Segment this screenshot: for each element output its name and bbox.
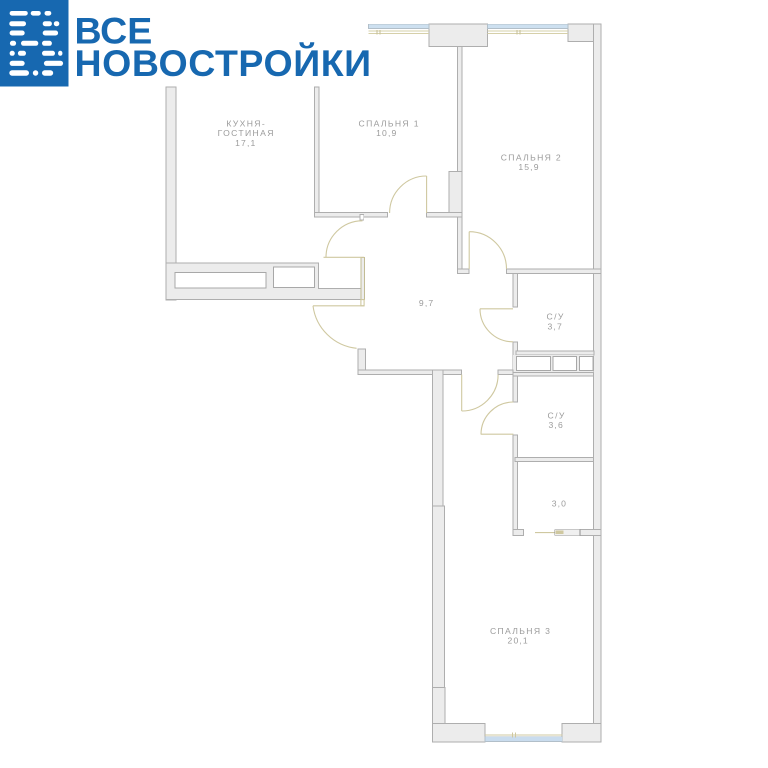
- svg-text:С/У: С/У: [547, 311, 565, 321]
- svg-text:3,7: 3,7: [547, 321, 562, 331]
- svg-text:СПАЛЬНЯ 3: СПАЛЬНЯ 3: [490, 626, 551, 636]
- svg-text:С/У: С/У: [548, 410, 566, 420]
- svg-text:СПАЛЬНЯ 1: СПАЛЬНЯ 1: [359, 119, 420, 129]
- svg-text:20,1: 20,1: [508, 635, 529, 645]
- svg-text:3,6: 3,6: [548, 420, 563, 430]
- svg-text:НОВОСТРОЙКИ: НОВОСТРОЙКИ: [75, 42, 372, 84]
- svg-text:КУХНЯ-: КУХНЯ-: [226, 119, 266, 129]
- svg-text:17,1: 17,1: [235, 138, 256, 148]
- svg-text:9,7: 9,7: [419, 298, 434, 308]
- svg-text:10,9: 10,9: [376, 128, 397, 138]
- svg-text:СПАЛЬНЯ 2: СПАЛЬНЯ 2: [501, 152, 562, 162]
- svg-text:3,0: 3,0: [552, 499, 567, 509]
- svg-text:15,9: 15,9: [518, 162, 539, 172]
- svg-text:ГОСТИНАЯ: ГОСТИНАЯ: [218, 128, 275, 138]
